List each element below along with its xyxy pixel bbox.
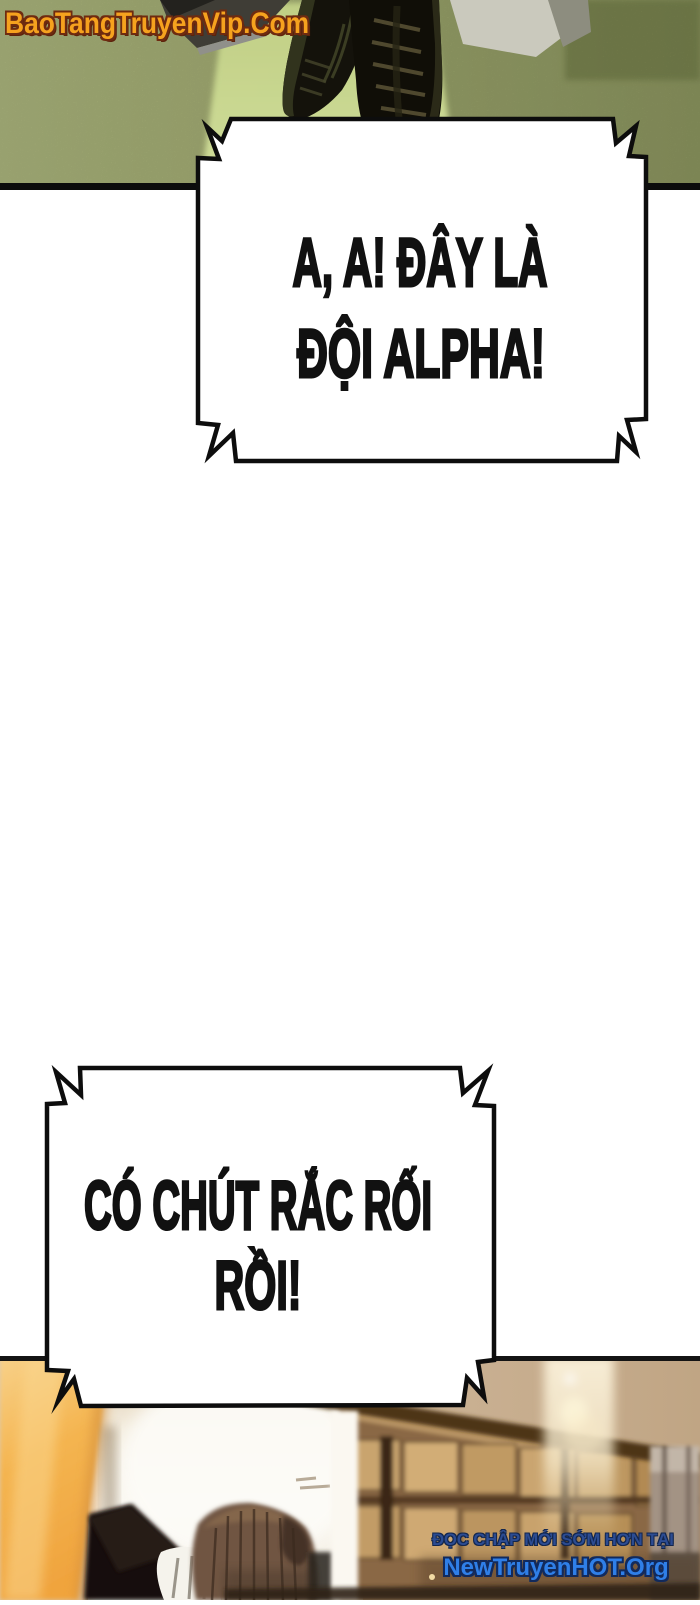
svg-text:CÓ CHÚT RẮC RỐI: CÓ CHÚT RẮC RỐI xyxy=(84,1167,432,1244)
svg-text:RỒI!: RỒI! xyxy=(215,1247,302,1324)
svg-text:A, A! ĐÂY LÀ: A, A! ĐÂY LÀ xyxy=(293,224,548,301)
svg-text:ĐỘI ALPHA!: ĐỘI ALPHA! xyxy=(297,315,545,392)
